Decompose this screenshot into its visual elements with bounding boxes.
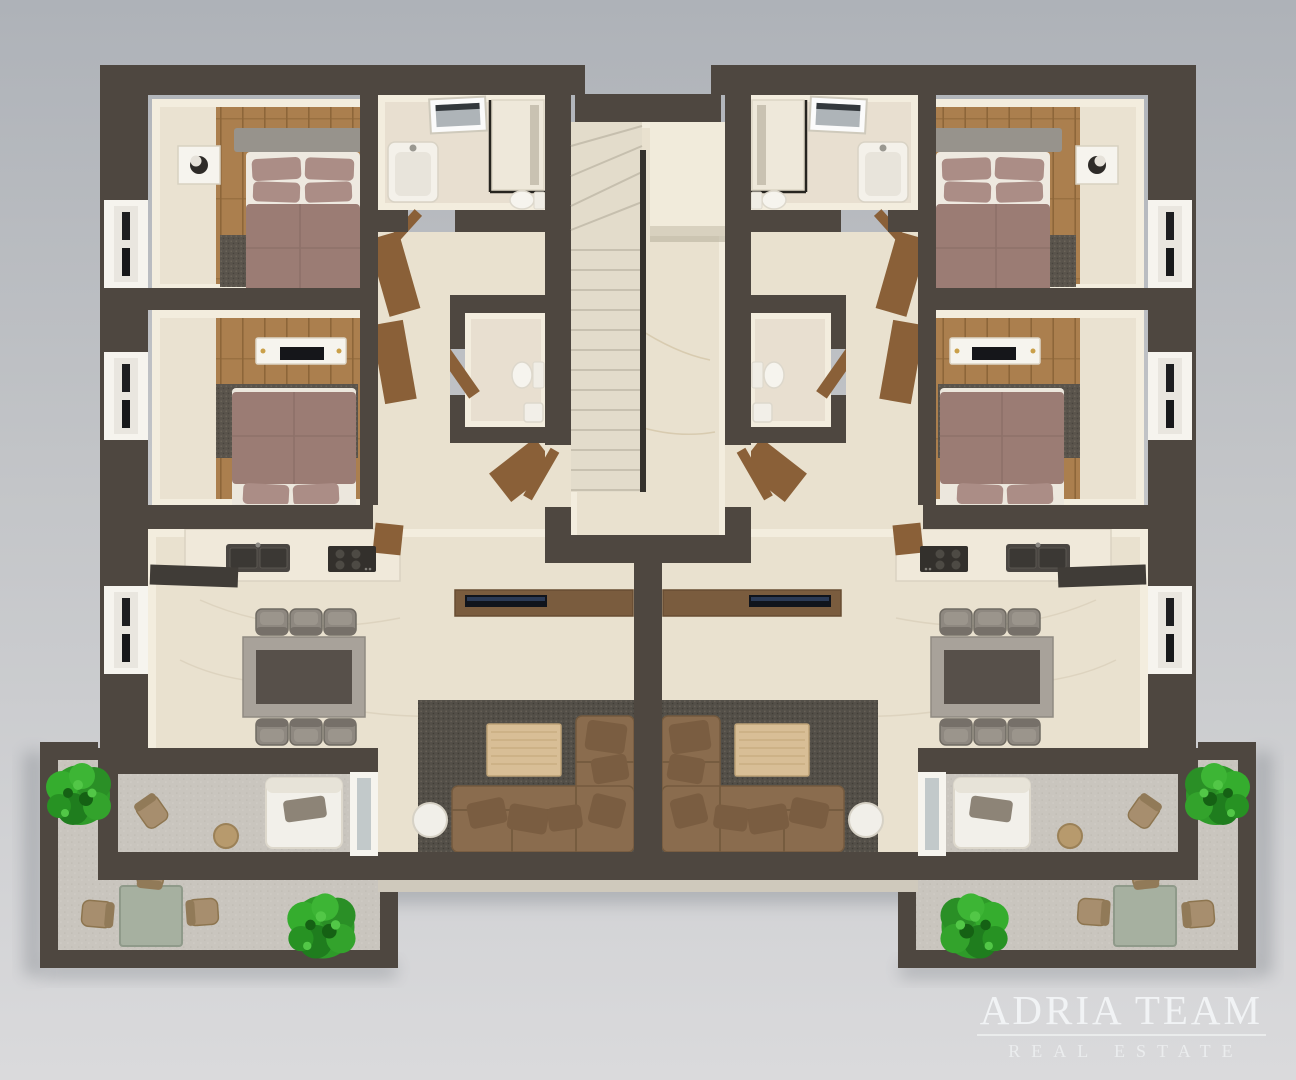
window-bedroom-2 — [104, 352, 148, 440]
double-bed — [234, 128, 362, 292]
toilet — [512, 362, 544, 388]
landing-platform — [650, 122, 725, 242]
party-wall — [634, 563, 662, 852]
glass-shower — [490, 100, 545, 192]
railing — [640, 150, 646, 492]
counter-return — [150, 564, 239, 587]
lounge-daybed — [266, 778, 342, 848]
window-bedroom-1 — [104, 200, 148, 288]
balcony-glass-door — [350, 772, 378, 856]
window-living — [104, 586, 148, 674]
cooktop — [328, 546, 376, 572]
nightstand — [178, 146, 220, 184]
watermark-title: ADRIA TEAM — [977, 990, 1266, 1036]
tv-sideboard — [455, 590, 633, 616]
washbasin — [388, 142, 438, 202]
stairs — [571, 122, 646, 492]
floor-plan-render: ADRIA TEAM REAL ESTATE — [0, 0, 1296, 1080]
tv-shelf — [256, 338, 346, 364]
apartment-unit-right — [648, 65, 1272, 978]
coffee-table — [487, 724, 561, 776]
terrace-bush-bottom — [287, 893, 355, 958]
toilet — [510, 191, 545, 209]
tv — [280, 347, 324, 360]
bedroom-2 — [152, 310, 364, 518]
watermark: ADRIA TEAM REAL ESTATE — [977, 990, 1266, 1062]
round-side-table — [413, 803, 447, 837]
terrace-bush-top — [46, 763, 111, 825]
bedroom-1 — [152, 99, 364, 292]
headboard — [234, 128, 362, 152]
skylight — [429, 97, 487, 134]
outdoor-dining-table — [120, 886, 182, 946]
apartment-unit-left — [24, 65, 648, 978]
covered-balcony — [118, 774, 352, 852]
dining-set — [243, 609, 365, 745]
kitchen-counter — [150, 523, 404, 588]
side-stool — [214, 824, 238, 848]
bathroom — [378, 95, 545, 210]
watermark-subtitle: REAL ESTATE — [977, 1041, 1266, 1062]
small-washbasin — [524, 403, 543, 422]
double-bed — [232, 388, 356, 518]
floor-plan-canvas — [0, 0, 1296, 1080]
